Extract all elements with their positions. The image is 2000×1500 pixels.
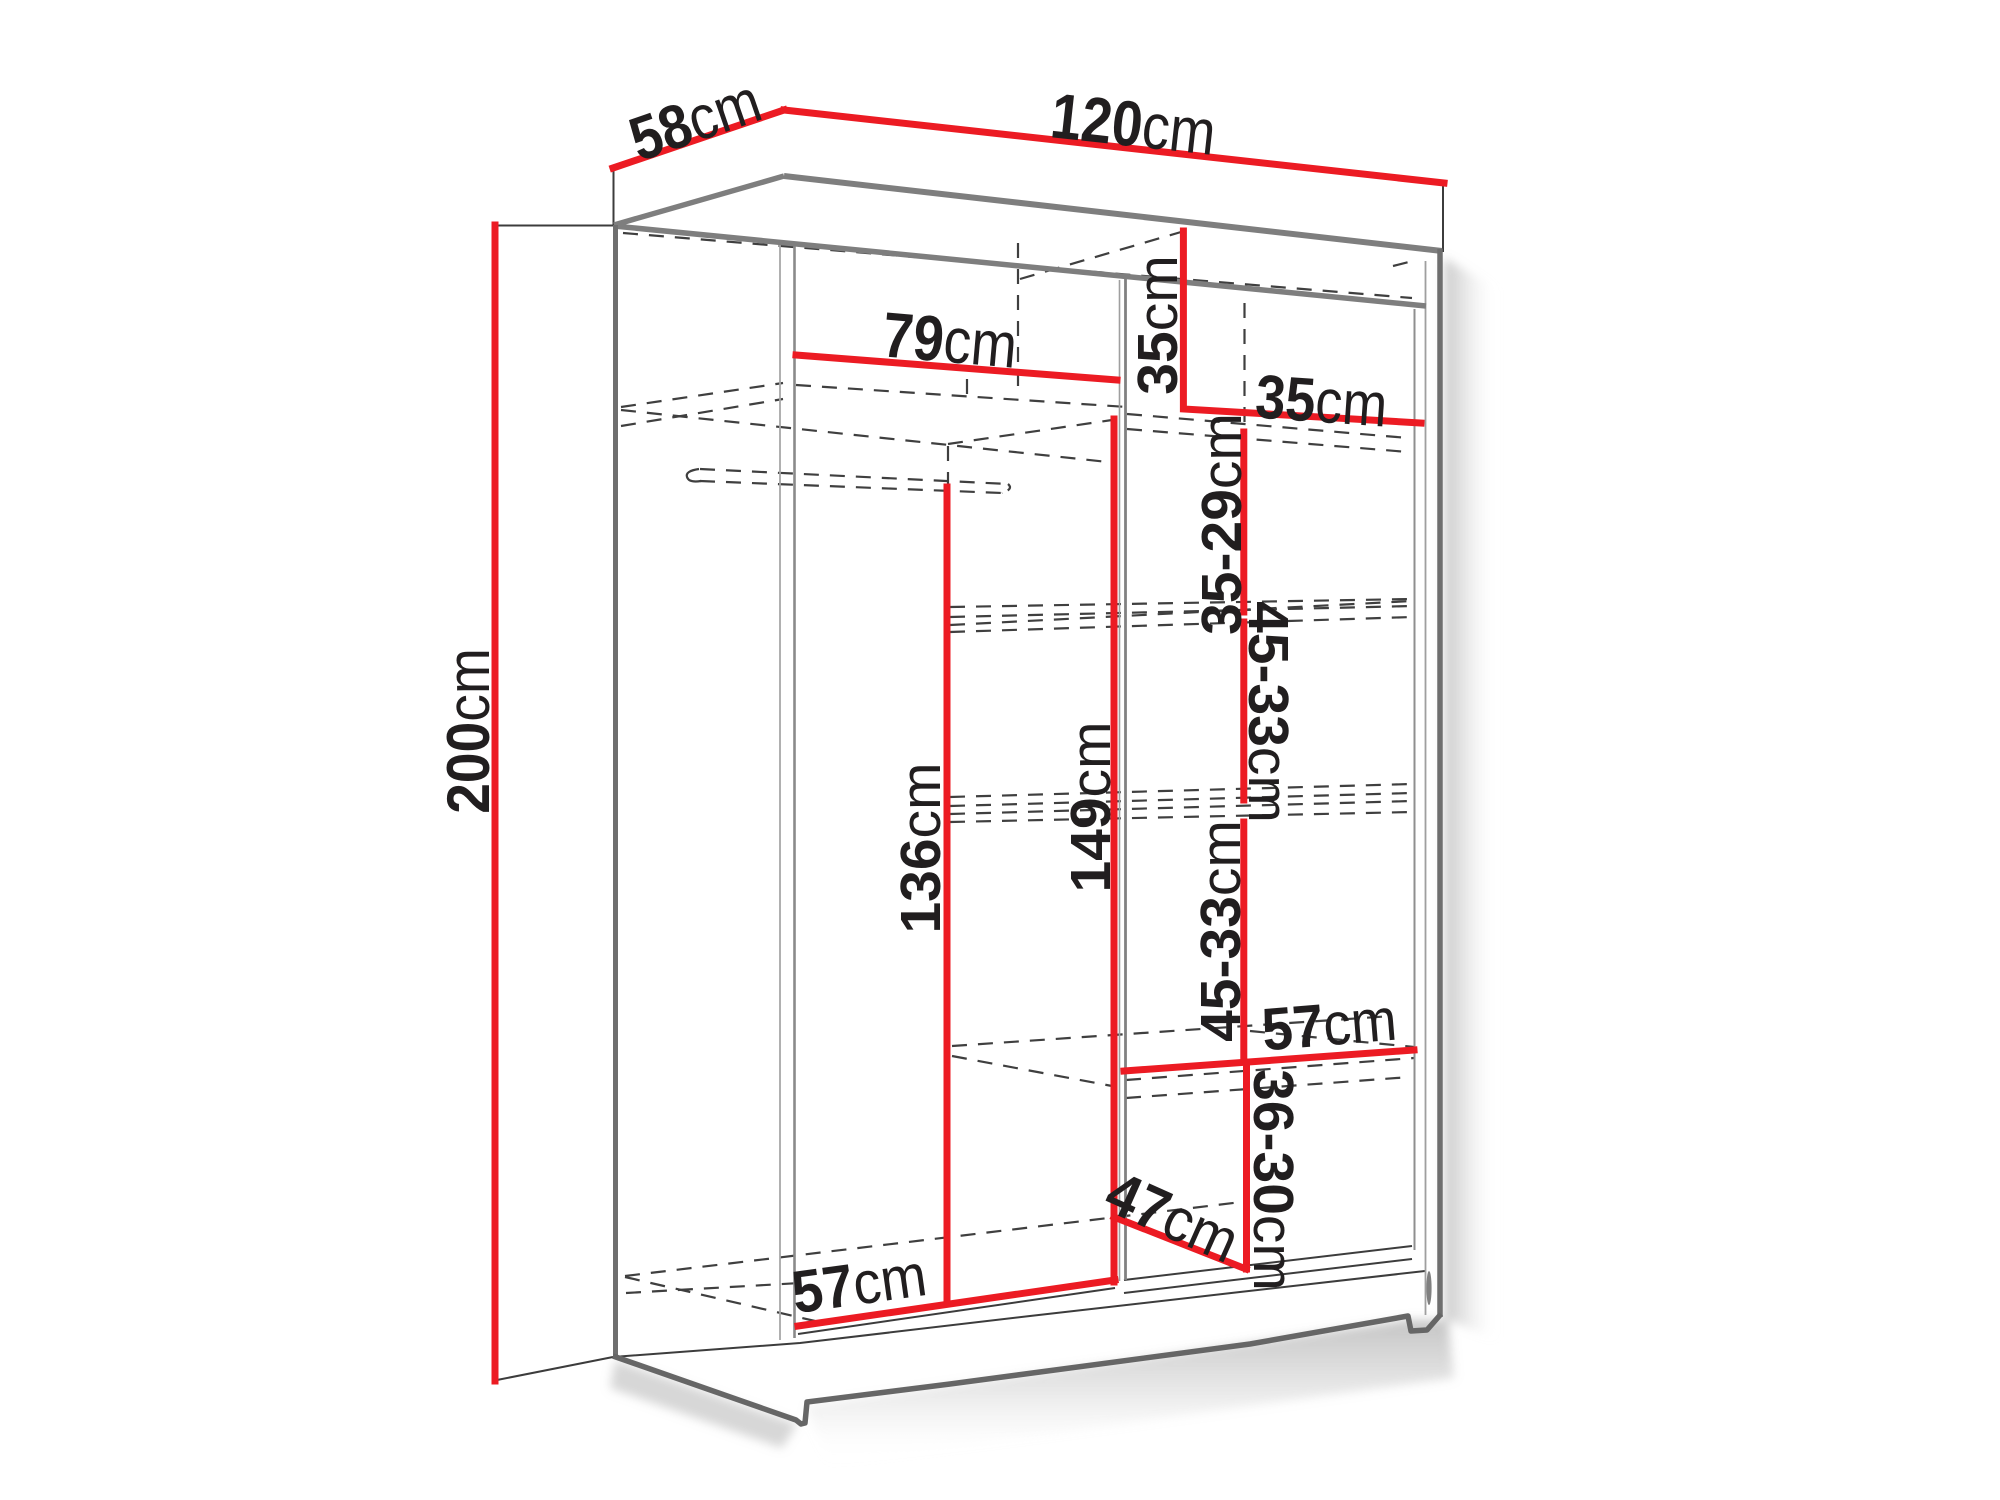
- svg-text:136cm: 136cm: [889, 762, 953, 933]
- svg-text:120cm: 120cm: [1047, 79, 1219, 169]
- svg-text:36-30cm: 36-30cm: [1241, 1069, 1305, 1291]
- svg-text:200cm: 200cm: [436, 648, 503, 814]
- svg-text:149cm: 149cm: [1059, 721, 1123, 892]
- svg-text:35cm: 35cm: [1126, 255, 1190, 394]
- svg-text:57cm: 57cm: [1259, 987, 1399, 1064]
- svg-text:79cm: 79cm: [880, 298, 1020, 381]
- svg-text:45-33cm: 45-33cm: [1189, 820, 1253, 1042]
- svg-text:35cm: 35cm: [1253, 362, 1389, 440]
- svg-text:45-33cm: 45-33cm: [1236, 601, 1300, 823]
- svg-text:58cm: 58cm: [621, 66, 770, 175]
